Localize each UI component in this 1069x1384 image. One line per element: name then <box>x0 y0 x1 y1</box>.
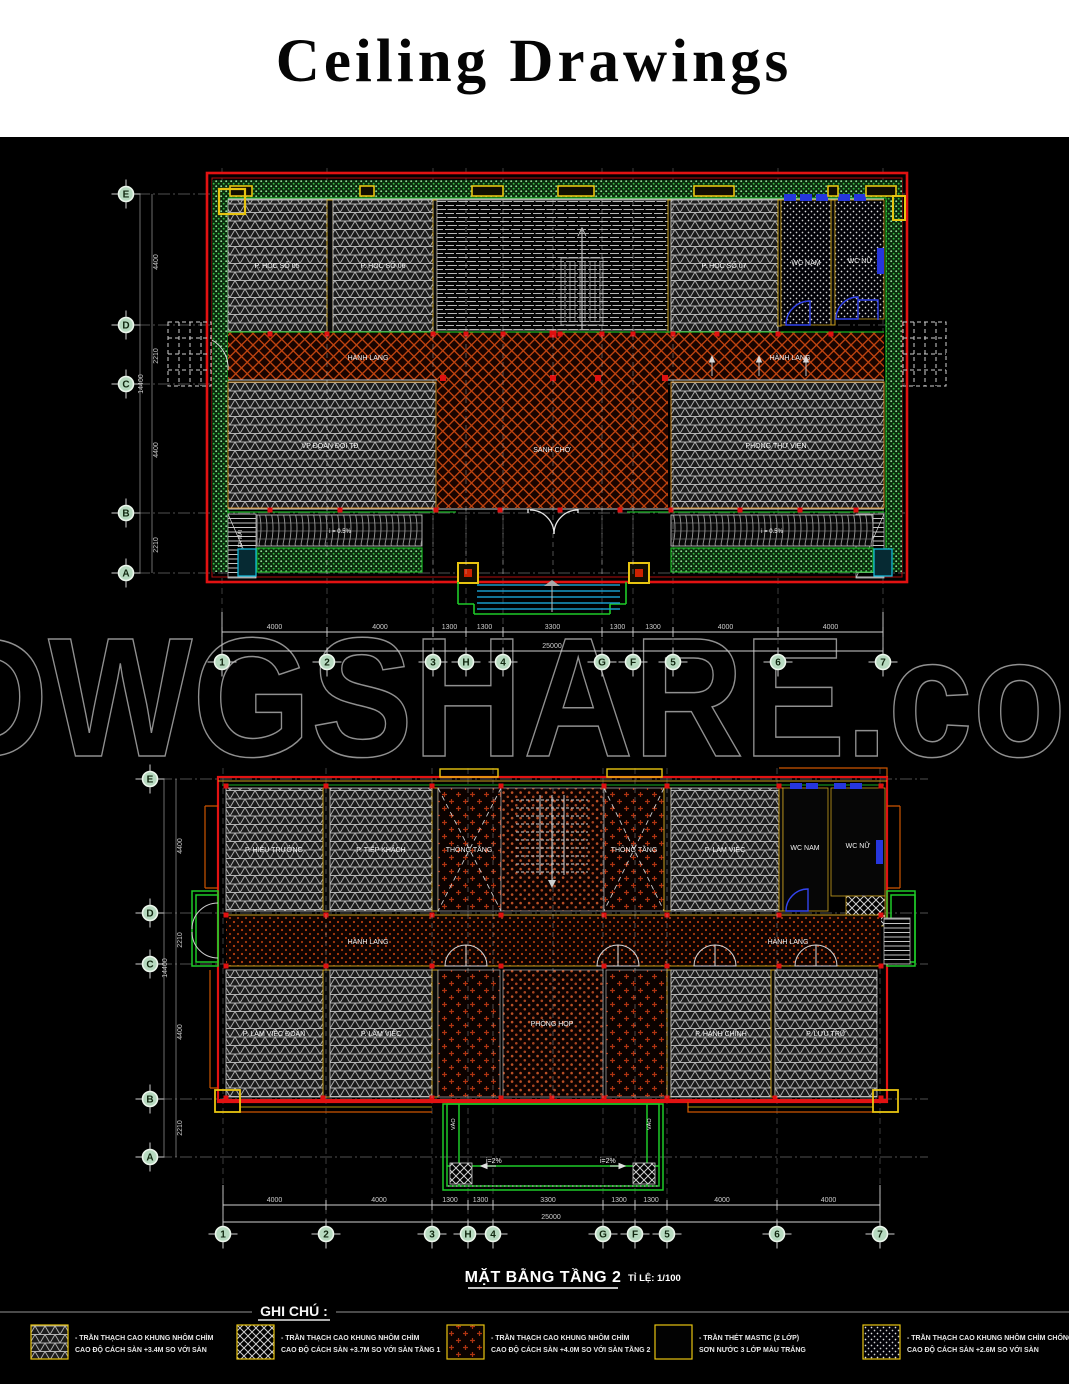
svg-text:2: 2 <box>323 1230 329 1241</box>
svg-text:E: E <box>147 775 154 786</box>
svg-text:1: 1 <box>219 658 225 669</box>
svg-text:P. LÀM VIỆC: P. LÀM VIỆC <box>361 1029 401 1038</box>
svg-text:i=2%: i=2% <box>600 1158 616 1165</box>
svg-text:P. LÀM VIỆC: P. LÀM VIỆC <box>705 845 745 854</box>
svg-text:1300: 1300 <box>477 624 493 631</box>
svg-text:CAO ĐỘ CÁCH SÀN +3.4M SO VỚI S: CAO ĐỘ CÁCH SÀN +3.4M SO VỚI SÀN <box>75 1345 207 1354</box>
svg-text:4000: 4000 <box>267 624 283 631</box>
svg-text:i=2%: i=2% <box>486 1158 502 1165</box>
svg-text:1: 1 <box>220 1230 226 1241</box>
svg-text:PHÒNG HỌP: PHÒNG HỌP <box>531 1019 574 1028</box>
svg-text:P. HIỆU TRƯỞNG: P. HIỆU TRƯỞNG <box>245 845 303 854</box>
svg-text:B: B <box>122 509 129 520</box>
svg-text:DWGSHARE.co: DWGSHARE.co <box>0 603 1066 793</box>
svg-text:WC NỮ: WC NỮ <box>846 841 871 850</box>
svg-text:D: D <box>122 321 129 332</box>
svg-text:4000: 4000 <box>823 624 839 631</box>
svg-text:PHÒNG THƯ VIỆN: PHÒNG THƯ VIỆN <box>745 441 806 450</box>
svg-text:4400: 4400 <box>153 442 160 458</box>
svg-text:i = 0.5%: i = 0.5% <box>329 529 352 535</box>
svg-text:4000: 4000 <box>371 1197 387 1204</box>
svg-text:2210: 2210 <box>177 932 184 948</box>
svg-text:6: 6 <box>774 1230 780 1241</box>
svg-text:E: E <box>123 190 130 201</box>
svg-text:3: 3 <box>429 1230 435 1241</box>
svg-text:SƠN NƯỚC 3 LỚP MÀU TRẮNG: SƠN NƯỚC 3 LỚP MÀU TRẮNG <box>699 1345 806 1354</box>
svg-text:4000: 4000 <box>718 624 734 631</box>
svg-text:VÀO: VÀO <box>450 1118 457 1130</box>
svg-text:4000: 4000 <box>267 1197 283 1204</box>
svg-text:H: H <box>462 658 469 669</box>
svg-text:WC NAM: WC NAM <box>790 845 819 852</box>
svg-text:TỈ LỆ: 1/100: TỈ LỆ: 1/100 <box>628 1272 681 1284</box>
svg-text:4400: 4400 <box>177 1024 184 1040</box>
svg-text:1300: 1300 <box>442 624 458 631</box>
svg-text:Ceiling Drawings: Ceiling Drawings <box>276 28 792 95</box>
svg-text:1300: 1300 <box>645 624 661 631</box>
svg-text:LÊN MÁI: LÊN MÁI <box>236 530 244 550</box>
svg-text:C: C <box>146 960 153 971</box>
svg-text:5: 5 <box>670 658 676 669</box>
svg-text:VP ĐOÀN ĐỘI TĐ: VP ĐOÀN ĐỘI TĐ <box>302 441 359 450</box>
svg-text:2210: 2210 <box>177 1120 184 1136</box>
svg-text:P. LƯU TRỮ: P. LƯU TRỮ <box>806 1029 846 1038</box>
svg-text:P. LÀM VIỆC ĐOÀN: P. LÀM VIỆC ĐOÀN <box>243 1029 306 1038</box>
svg-text:7: 7 <box>880 658 886 669</box>
svg-text:1300: 1300 <box>610 624 626 631</box>
svg-text:HÀNH LANG: HÀNH LANG <box>768 937 809 946</box>
svg-text:H: H <box>464 1230 471 1241</box>
svg-text:C: C <box>122 380 129 391</box>
svg-text:3300: 3300 <box>540 1197 556 1204</box>
svg-text:25000: 25000 <box>542 643 562 650</box>
svg-text:4000: 4000 <box>714 1197 730 1204</box>
svg-text:4000: 4000 <box>821 1197 837 1204</box>
svg-text:CAO ĐỘ CÁCH SÀN +2.6M SO VỚI S: CAO ĐỘ CÁCH SÀN +2.6M SO VỚI SÀN <box>907 1345 1039 1354</box>
svg-text:2: 2 <box>324 658 330 669</box>
svg-text:F: F <box>630 658 636 669</box>
svg-text:4400: 4400 <box>177 838 184 854</box>
svg-text:3: 3 <box>430 658 436 669</box>
svg-text:HÀNH LANG: HÀNH LANG <box>348 937 389 946</box>
svg-text:SẢNH CHỜ: SẢNH CHỜ <box>533 445 571 454</box>
svg-text:G: G <box>599 1230 607 1241</box>
svg-text:1300: 1300 <box>473 1197 489 1204</box>
svg-text:G: G <box>598 658 606 669</box>
svg-text:6: 6 <box>775 658 781 669</box>
svg-text:HÀNH LANG: HÀNH LANG <box>348 353 389 362</box>
svg-text:WC NỮ: WC NỮ <box>848 256 873 265</box>
svg-text:14400: 14400 <box>162 958 169 978</box>
svg-text:5: 5 <box>664 1230 670 1241</box>
svg-text:4000: 4000 <box>372 624 388 631</box>
svg-text:i = 0.5%: i = 0.5% <box>761 529 784 535</box>
svg-text:GHI CHÚ :: GHI CHÚ : <box>260 1302 328 1319</box>
svg-text:A: A <box>146 1153 153 1164</box>
svg-text:D: D <box>146 909 153 920</box>
svg-text:F: F <box>632 1230 638 1241</box>
svg-text:WC NAM: WC NAM <box>791 260 820 267</box>
svg-text:1300: 1300 <box>611 1197 627 1204</box>
svg-text:B: B <box>146 1095 153 1106</box>
svg-text:MẶT BẰNG TẦNG 2: MẶT BẰNG TẦNG 2 <box>465 1267 622 1286</box>
svg-text:4: 4 <box>500 658 506 669</box>
svg-text:1300: 1300 <box>442 1197 458 1204</box>
svg-text:4: 4 <box>490 1230 496 1241</box>
svg-text:2210: 2210 <box>153 537 160 553</box>
svg-text:14400: 14400 <box>138 374 145 394</box>
svg-text:VÀO: VÀO <box>646 1118 653 1130</box>
svg-text:4400: 4400 <box>153 254 160 270</box>
svg-text:1300: 1300 <box>643 1197 659 1204</box>
svg-text:P. HÀNH CHÍNH: P. HÀNH CHÍNH <box>695 1029 747 1038</box>
svg-text:2210: 2210 <box>153 348 160 364</box>
svg-text:3300: 3300 <box>545 624 561 631</box>
svg-text:25000: 25000 <box>541 1214 561 1221</box>
svg-text:A: A <box>122 569 129 580</box>
svg-text:7: 7 <box>877 1230 883 1241</box>
